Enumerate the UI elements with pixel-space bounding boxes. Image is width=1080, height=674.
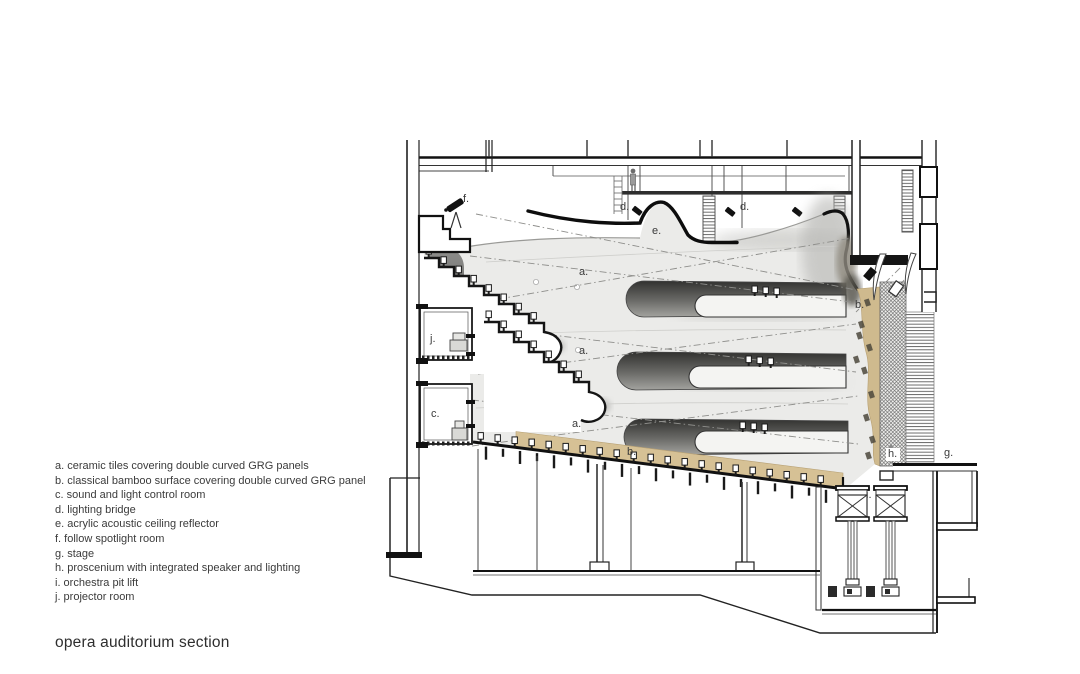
left-rooms bbox=[416, 304, 475, 448]
control-room bbox=[420, 384, 475, 444]
wall-opening bbox=[920, 224, 937, 269]
console-icon bbox=[452, 428, 467, 440]
legend-item: i. orchestra pit lift bbox=[55, 576, 366, 591]
legend-list: a. ceramic tiles covering double curved … bbox=[55, 459, 366, 605]
opera-section-sheet: f.d.d.e.a.b.j.a.c.a.b.h.g.i. a. ceramic … bbox=[0, 0, 1080, 674]
legend-item: c. sound and light control room bbox=[55, 488, 366, 503]
legend-item: a. ceramic tiles covering double curved … bbox=[55, 459, 366, 474]
person-figure bbox=[631, 169, 636, 191]
left-wall-structure bbox=[407, 140, 419, 556]
follow-spotlight-icon bbox=[444, 198, 464, 228]
legend-item: d. lighting bridge bbox=[55, 503, 366, 518]
balcony-tongue bbox=[689, 366, 846, 388]
legend-item: j. projector room bbox=[55, 590, 366, 605]
bridge-ladder bbox=[902, 170, 913, 232]
proscenium-hatch bbox=[880, 282, 906, 466]
safety-curtain bbox=[906, 312, 934, 462]
wall-opening bbox=[920, 167, 937, 197]
balcony-tongue bbox=[695, 295, 846, 317]
projector-room bbox=[420, 308, 475, 360]
lighting-bridge-deck bbox=[622, 191, 852, 195]
page-title: opera auditorium section bbox=[55, 634, 230, 652]
follow-spot-room bbox=[419, 198, 470, 252]
projector-icon bbox=[450, 340, 467, 351]
legend-item: h. proscenium with integrated speaker an… bbox=[55, 561, 366, 576]
access-ladder bbox=[614, 176, 622, 214]
legend-item: g. stage bbox=[55, 547, 366, 562]
legend-item: e. acrylic acoustic ceiling reflector bbox=[55, 517, 366, 532]
legend-item: f. follow spotlight room bbox=[55, 532, 366, 547]
legend-item: b. classical bamboo surface covering dou… bbox=[55, 474, 366, 489]
